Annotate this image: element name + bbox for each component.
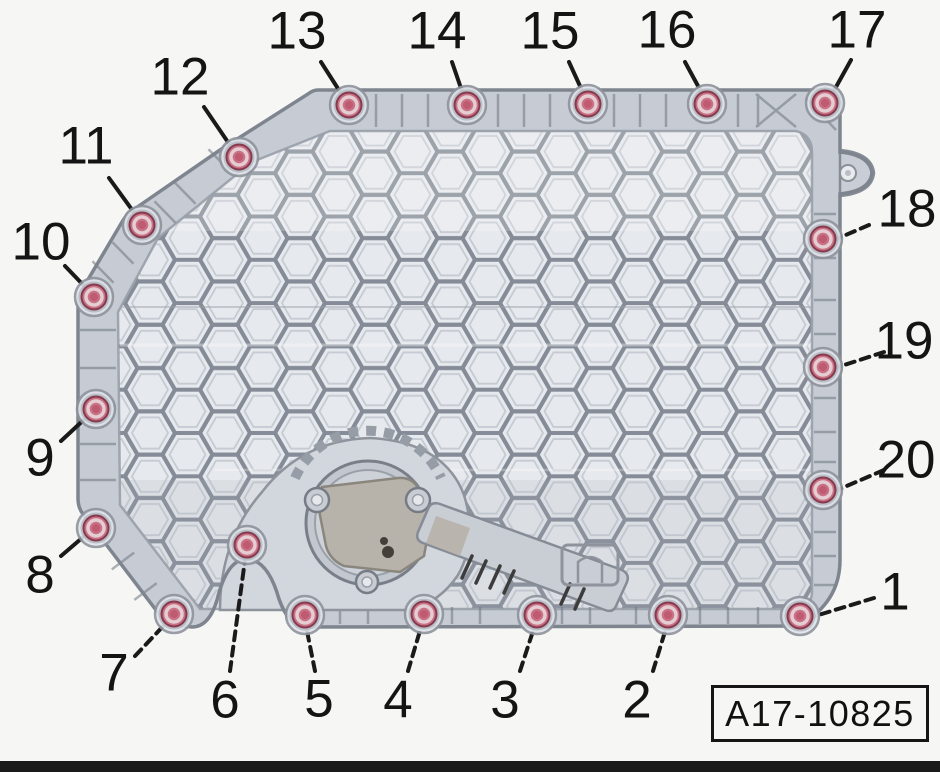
callout-number-16: 16 xyxy=(638,1,697,60)
bolt-center xyxy=(138,221,146,229)
callout-number-1: 1 xyxy=(880,563,909,622)
bolt-center xyxy=(92,405,100,413)
callout-number-8: 8 xyxy=(25,546,54,605)
bolt-center xyxy=(345,101,353,109)
bolt-1 xyxy=(781,597,819,635)
bolt-center xyxy=(821,99,829,107)
bolt-18 xyxy=(804,220,842,258)
plate-dot-large xyxy=(382,546,394,558)
callout-number-3: 3 xyxy=(490,671,519,730)
pan-illustration: 1234567891011121314151617181920 xyxy=(0,0,940,772)
bolt-center xyxy=(703,100,711,108)
bolt-15 xyxy=(569,85,607,123)
callout-number-9: 9 xyxy=(25,429,54,488)
bolt-center xyxy=(90,293,98,301)
callout-number-4: 4 xyxy=(383,671,412,730)
callout-number-14: 14 xyxy=(408,2,467,61)
bolt-13 xyxy=(330,86,368,124)
callout-number-2: 2 xyxy=(622,671,651,730)
bolt-4 xyxy=(405,595,443,633)
bolt-center xyxy=(796,612,804,620)
bolt-center xyxy=(533,611,541,619)
bolt-12 xyxy=(220,138,258,176)
bolt-2 xyxy=(649,596,687,634)
bolt-center xyxy=(664,611,672,619)
callout-number-12: 12 xyxy=(151,48,210,107)
callout-number-17: 17 xyxy=(828,1,887,60)
callout-number-13: 13 xyxy=(268,2,327,61)
bolt-center xyxy=(243,541,251,549)
plate-dot-small xyxy=(380,537,388,545)
figure-code: A17-10825 xyxy=(725,693,915,735)
bolt-center xyxy=(819,363,827,371)
bolt-center xyxy=(170,610,178,618)
bolt-center xyxy=(301,611,309,619)
callout-number-11: 11 xyxy=(58,117,113,176)
bolt-6 xyxy=(228,526,266,564)
callout-number-18: 18 xyxy=(878,180,937,239)
bolt-17 xyxy=(806,84,844,122)
bolt-8 xyxy=(77,509,115,547)
bottom-edge-bar xyxy=(0,761,940,772)
bolt-center xyxy=(420,610,428,618)
bolt-20 xyxy=(804,471,842,509)
bolt-center xyxy=(235,153,243,161)
bolt-center xyxy=(819,486,827,494)
bolt-center xyxy=(819,235,827,243)
figure-code-box: A17-10825 xyxy=(711,685,929,742)
callout-number-15: 15 xyxy=(521,2,580,61)
bolt-3 xyxy=(518,596,556,634)
bolt-11 xyxy=(123,206,161,244)
oil-pan-bolt-diagram: 1234567891011121314151617181920 A17-1082… xyxy=(0,0,940,772)
callout-number-6: 6 xyxy=(210,671,239,730)
callout-number-5: 5 xyxy=(304,670,333,729)
bolt-19 xyxy=(804,348,842,386)
bolt-center xyxy=(584,100,592,108)
callout-number-10: 10 xyxy=(12,213,71,272)
callout-number-19: 19 xyxy=(875,312,934,371)
bolt-9 xyxy=(77,390,115,428)
bolt-14 xyxy=(448,86,486,124)
callout-number-20: 20 xyxy=(877,431,936,490)
bolt-center xyxy=(92,524,100,532)
callout-number-7: 7 xyxy=(99,644,128,703)
bolt-7 xyxy=(155,595,193,633)
bolt-5 xyxy=(286,596,324,634)
bolt-16 xyxy=(688,85,726,123)
bolt-center xyxy=(463,101,471,109)
bolt-10 xyxy=(75,278,113,316)
